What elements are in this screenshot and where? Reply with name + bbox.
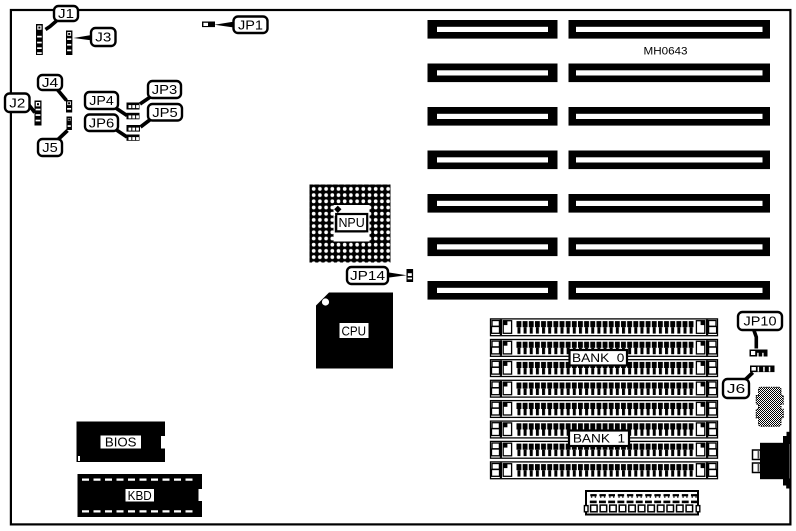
svg-text:J1: J1 xyxy=(58,6,74,21)
svg-text:CPU: CPU xyxy=(342,323,367,338)
svg-text:JP10: JP10 xyxy=(744,314,777,329)
svg-text:NPU: NPU xyxy=(338,215,364,230)
svg-text:J2: J2 xyxy=(9,95,25,110)
svg-text:JP6: JP6 xyxy=(89,115,115,130)
svg-text:JP14: JP14 xyxy=(350,268,385,283)
svg-text:KBD: KBD xyxy=(128,488,152,503)
svg-text:J6: J6 xyxy=(727,381,746,396)
svg-text:BIOS: BIOS xyxy=(105,434,137,449)
svg-text:JP4: JP4 xyxy=(89,93,114,108)
svg-text:J4: J4 xyxy=(42,75,59,90)
svg-text:JP5: JP5 xyxy=(152,105,178,120)
svg-text:BANK 0: BANK 0 xyxy=(572,351,625,365)
svg-text:JP1: JP1 xyxy=(238,17,263,32)
svg-text:MH0643: MH0643 xyxy=(644,46,688,58)
svg-text:J5: J5 xyxy=(42,140,58,155)
svg-text:JP3: JP3 xyxy=(152,82,178,97)
svg-text:J3: J3 xyxy=(95,30,111,45)
svg-text:BANK 1: BANK 1 xyxy=(573,432,626,446)
